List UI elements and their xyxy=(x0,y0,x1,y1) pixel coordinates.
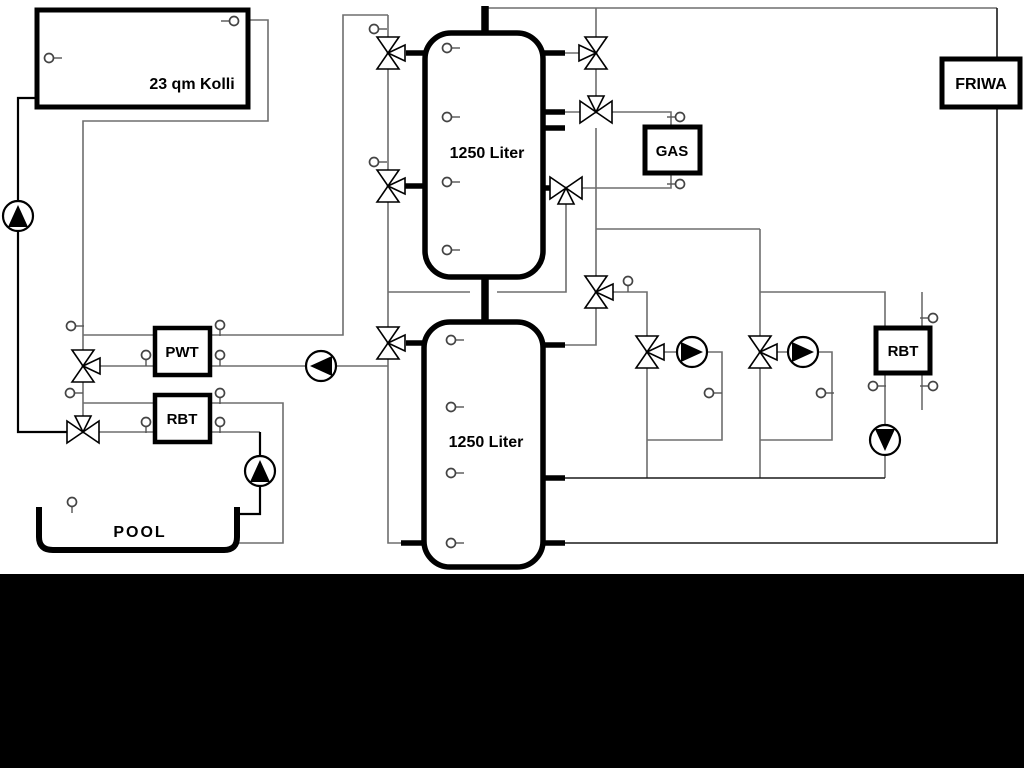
temperature-sensor xyxy=(370,158,388,167)
fresh-water-station-label: FRIWA xyxy=(955,76,1007,93)
temperature-sensor xyxy=(68,498,77,514)
temperature-sensor xyxy=(216,321,225,337)
pump-down-icon xyxy=(870,425,900,455)
screenshot-canvas: 23 qm Kolli 1250 Liter 1250 Liter PWT RB… xyxy=(0,0,1024,768)
gas-boiler-label: GAS xyxy=(656,143,689,160)
pump-up-icon xyxy=(245,456,275,486)
three-way-valve xyxy=(377,37,405,69)
return-unit-right-label: RBT xyxy=(888,343,919,360)
temperature-sensor xyxy=(370,25,388,34)
temperature-sensor xyxy=(667,180,685,189)
temperature-sensor xyxy=(142,351,151,367)
temperature-sensor xyxy=(216,389,225,405)
temperature-sensor xyxy=(67,322,85,331)
temperature-sensor xyxy=(142,418,151,434)
pool-label: POOL xyxy=(113,524,166,541)
three-way-valve xyxy=(585,276,613,308)
temperature-sensor xyxy=(869,382,887,391)
three-way-valve xyxy=(72,350,100,382)
pump-left-icon xyxy=(306,351,336,381)
bottom-black-bar xyxy=(0,574,1024,768)
pump-right-icon xyxy=(677,337,707,367)
return-unit-left-label: RBT xyxy=(167,411,198,428)
pump-up-icon xyxy=(3,201,33,231)
pump-right-icon xyxy=(788,337,818,367)
three-way-valve xyxy=(749,336,777,368)
temperature-sensor xyxy=(667,113,685,122)
three-way-valve xyxy=(636,336,664,368)
three-way-valve xyxy=(377,327,405,359)
pipes-dark xyxy=(565,8,997,543)
temperature-sensor xyxy=(705,389,723,398)
pipes-black xyxy=(18,98,260,514)
three-way-valve xyxy=(377,170,405,202)
collector-label: 23 qm Kolli xyxy=(149,76,234,93)
temperature-sensor xyxy=(216,351,225,367)
three-way-valve xyxy=(580,96,612,123)
temperature-sensor xyxy=(66,389,84,398)
heat-exchanger-label: PWT xyxy=(165,344,198,361)
temperature-sensor xyxy=(216,418,225,434)
hydraulic-schematic: 23 qm Kolli 1250 Liter 1250 Liter PWT RB… xyxy=(0,0,1024,574)
three-way-valve xyxy=(579,37,607,69)
three-way-valve xyxy=(67,416,99,443)
temperature-sensor xyxy=(624,277,633,293)
tank-top-label: 1250 Liter xyxy=(450,145,525,162)
three-way-valve xyxy=(550,177,582,204)
tank-bottom-label: 1250 Liter xyxy=(449,434,524,451)
